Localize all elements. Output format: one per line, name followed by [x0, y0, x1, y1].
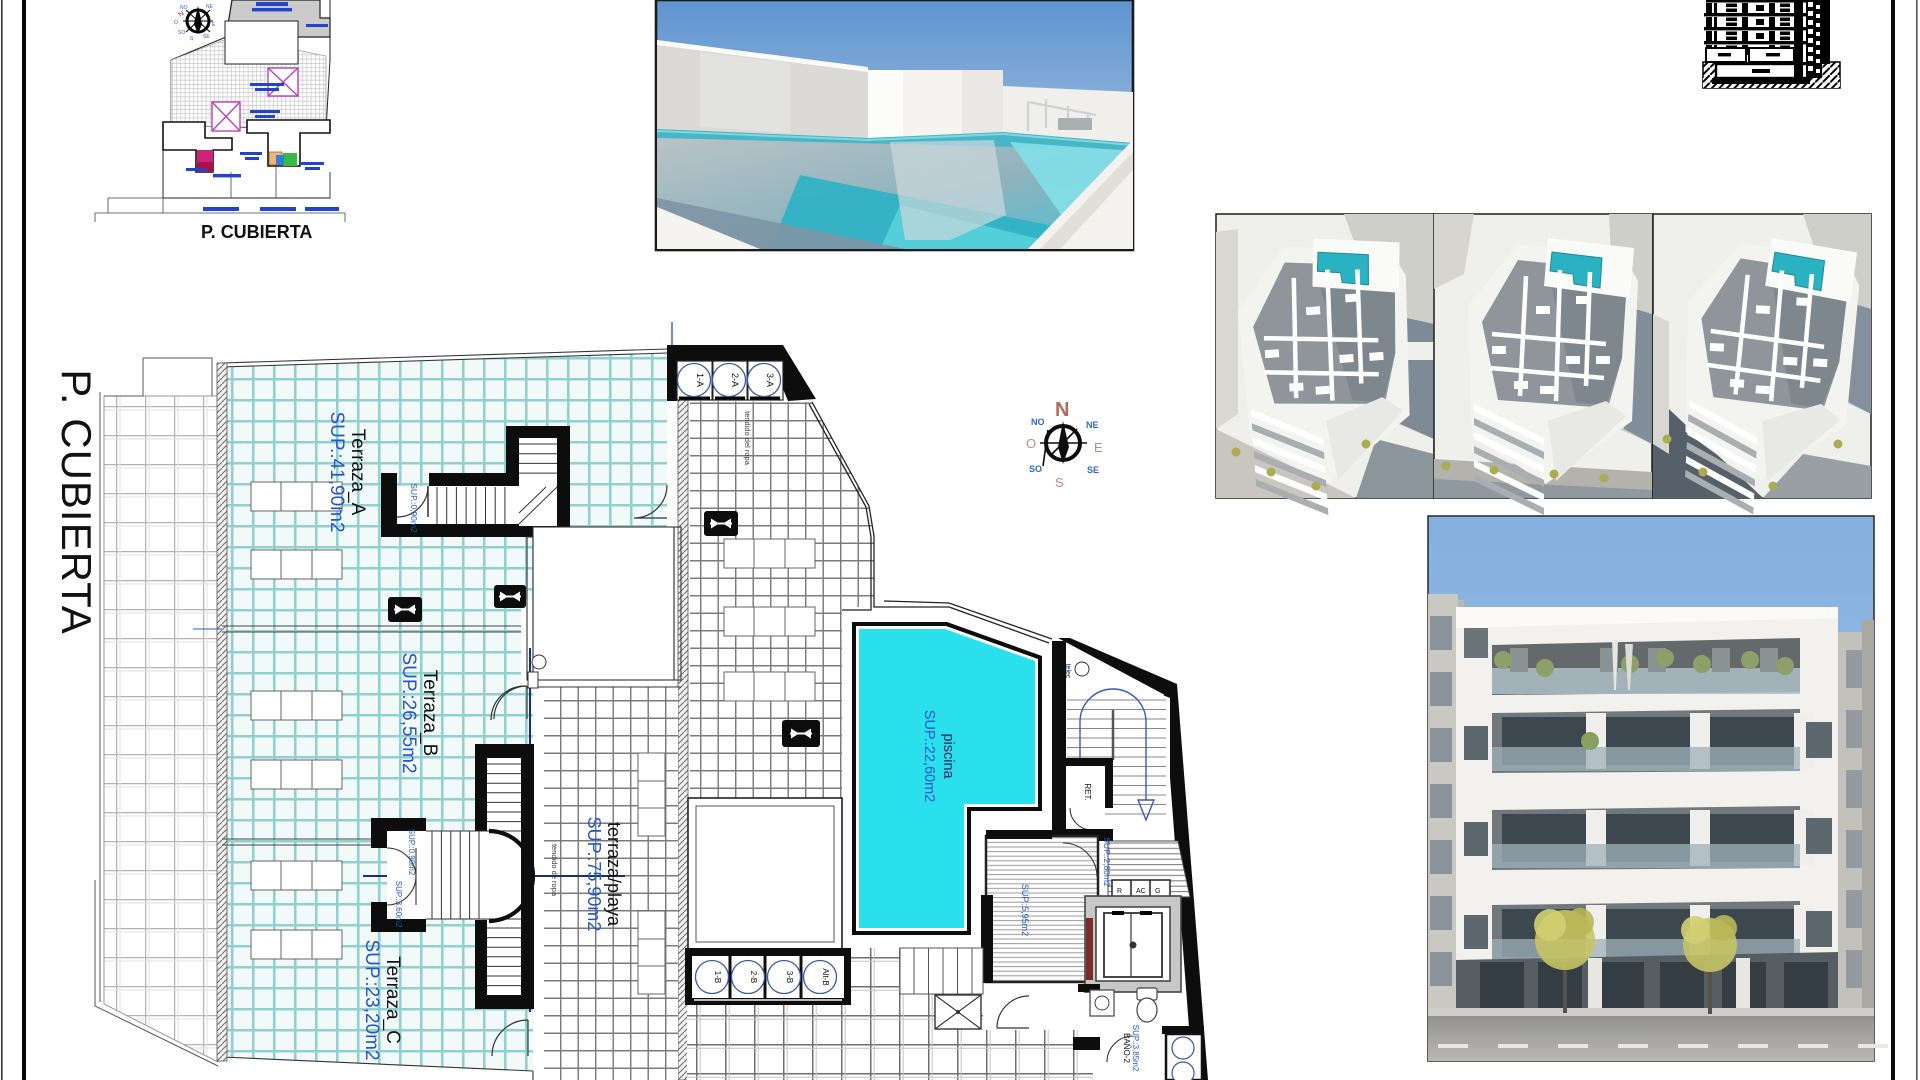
svg-text:SUP.:0,90m2: SUP.:0,90m2	[407, 829, 416, 876]
svg-text:O: O	[174, 20, 178, 26]
svg-text:1-A: 1-A	[695, 373, 705, 387]
svg-text:AC: AC	[1136, 888, 1146, 895]
svg-text:R: R	[1117, 888, 1122, 895]
svg-text:SE: SE	[203, 34, 210, 40]
svg-text:SUP.:5,95m2: SUP.:5,95m2	[1020, 884, 1030, 936]
svg-text:Terraza_C: Terraza_C	[382, 956, 403, 1044]
svg-text:NO: NO	[1031, 417, 1045, 427]
svg-text:P. CUBIERTA: P. CUBIERTA	[201, 222, 312, 242]
svg-text:terraza/playa: terraza/playa	[604, 822, 624, 927]
svg-text:NO: NO	[180, 5, 188, 11]
svg-text:Terraza_B: Terraza_B	[419, 670, 440, 757]
svg-text:RET.: RET.	[1083, 783, 1092, 800]
svg-text:SO: SO	[178, 30, 185, 36]
svg-text:SUP.:0,90m2: SUP.:0,90m2	[409, 483, 419, 533]
svg-text:piscina: piscina	[940, 733, 956, 779]
svg-text:SE: SE	[1087, 465, 1099, 475]
svg-text:tendido de ropa: tendido de ropa	[550, 844, 559, 897]
svg-text:O: O	[1026, 436, 1036, 451]
svg-text:SUP.:3,85m2: SUP.:3,85m2	[1131, 1025, 1140, 1072]
svg-text:2-A: 2-A	[730, 373, 740, 387]
svg-text:SUP.:23,20m2: SUP.:23,20m2	[361, 939, 382, 1060]
svg-text:S: S	[1055, 475, 1064, 490]
svg-text:E: E	[1094, 440, 1103, 455]
svg-text:SO: SO	[1029, 464, 1042, 474]
svg-text:telec: telec	[1064, 664, 1071, 679]
svg-text:SUP.:75,90m2: SUP.:75,90m2	[584, 817, 604, 932]
svg-text:Alt-B: Alt-B	[821, 968, 830, 985]
svg-text:tendido del ropa: tendido del ropa	[743, 411, 752, 466]
svg-text:SUP.:41,90m2: SUP.:41,90m2	[326, 411, 347, 532]
svg-text:NE: NE	[1086, 420, 1099, 430]
svg-text:G: G	[1155, 888, 1160, 895]
svg-text:3-A: 3-A	[765, 373, 775, 387]
svg-text:2-B: 2-B	[749, 971, 758, 983]
svg-text:Terraza_A: Terraza_A	[347, 429, 368, 516]
svg-text:3-B: 3-B	[785, 971, 794, 983]
svg-text:1-B: 1-B	[713, 971, 722, 983]
svg-text:SUP.:2,80m2: SUP.:2,80m2	[1102, 837, 1112, 887]
svg-text:N: N	[1055, 399, 1069, 421]
svg-text:NE: NE	[206, 4, 214, 10]
svg-text:SUP.:3,60m2: SUP.:3,60m2	[394, 881, 403, 928]
svg-text:SUP.:22,60m2: SUP.:22,60m2	[921, 710, 937, 802]
svg-text:SUP.:26,55m2: SUP.:26,55m2	[398, 652, 419, 773]
svg-text:P. CUBIERTA: P. CUBIERTA	[53, 369, 100, 634]
